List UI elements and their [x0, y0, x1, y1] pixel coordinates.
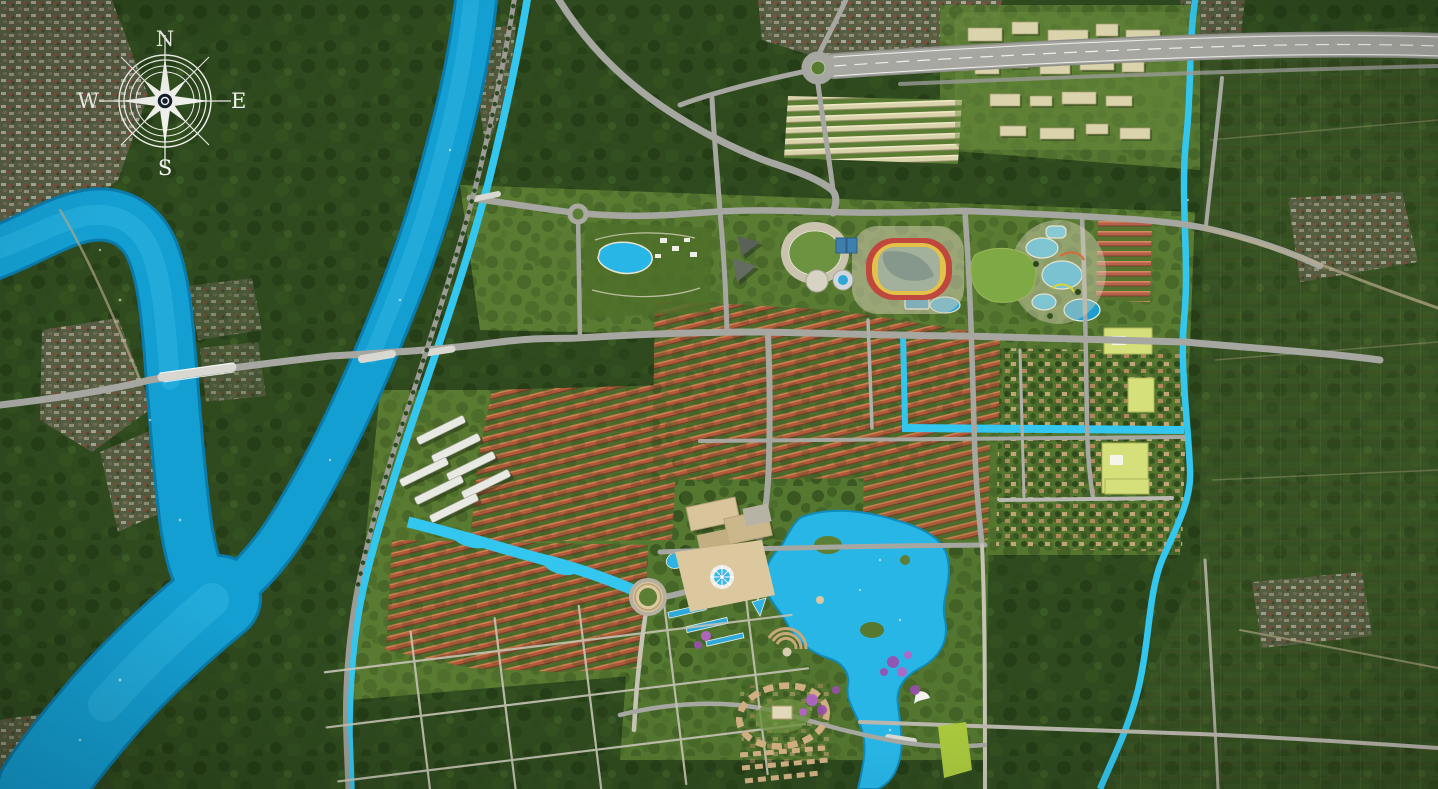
masterplan-map: N E S W	[0, 0, 1438, 789]
masterplan-render: N E S W	[0, 0, 1438, 789]
vignette-overlay	[0, 0, 1438, 789]
